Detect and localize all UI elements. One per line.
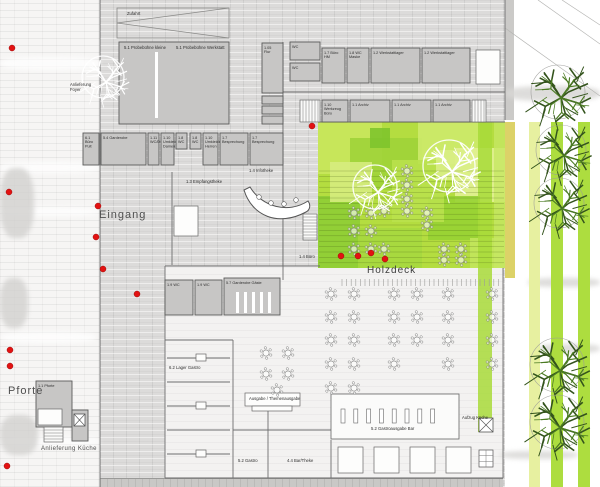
chair-icon — [369, 243, 371, 245]
table-icon — [328, 361, 334, 367]
table-icon — [328, 337, 334, 343]
chair-icon — [448, 250, 450, 252]
chair-icon — [420, 313, 422, 315]
tiny-label: Ausgabe / Themenausgabe — [249, 396, 301, 401]
chair-icon — [388, 250, 390, 252]
chair-icon — [358, 295, 360, 297]
chair-icon — [411, 337, 413, 339]
chair-icon — [275, 384, 277, 386]
chair-icon — [374, 245, 376, 247]
bench-stool — [294, 198, 299, 203]
landscape-stripe — [478, 122, 492, 432]
bench-stool — [269, 201, 274, 206]
chair-icon — [353, 217, 355, 219]
chair-icon — [411, 291, 413, 293]
chair-icon — [486, 361, 488, 363]
bar-slot — [392, 409, 396, 423]
chair-icon — [353, 344, 355, 346]
landscape-stripe — [505, 122, 515, 278]
chair-icon — [379, 251, 381, 253]
chair-icon — [335, 318, 337, 320]
chair-icon — [411, 172, 413, 174]
tiny-label: 6.2 Lager Gastro — [169, 365, 201, 370]
chair-icon — [420, 290, 422, 292]
chair-icon — [442, 243, 444, 245]
table-icon — [404, 208, 410, 214]
chair-icon — [430, 209, 432, 211]
table-icon — [445, 361, 451, 367]
chair-icon — [451, 313, 453, 315]
chair-icon — [291, 370, 293, 372]
chair-icon — [446, 358, 448, 360]
chair-icon — [357, 360, 359, 362]
fixture-box — [476, 50, 500, 84]
chair-icon — [261, 355, 263, 357]
chair-icon — [426, 229, 428, 231]
chair-icon — [460, 264, 462, 266]
table-icon — [489, 314, 495, 320]
chair-icon — [410, 195, 412, 197]
chair-icon — [334, 360, 336, 362]
table-icon — [424, 210, 430, 216]
chair-icon — [357, 245, 359, 247]
chair-icon — [425, 207, 427, 209]
bench-stool — [257, 195, 262, 200]
stairs — [303, 214, 317, 240]
chair-icon — [335, 389, 337, 391]
table-icon — [391, 361, 397, 367]
label-holzdeck: Holzdeck — [367, 265, 416, 276]
table-icon — [424, 222, 430, 228]
chair-icon — [334, 336, 336, 338]
table-icon — [445, 337, 451, 343]
chair-icon — [291, 349, 293, 351]
bar-slot — [341, 409, 345, 423]
chair-icon — [447, 256, 449, 258]
chair-icon — [447, 344, 449, 346]
room — [119, 42, 229, 124]
chair-icon — [353, 298, 355, 300]
garderobe-slot — [252, 292, 255, 313]
holzdeck-patch — [370, 128, 390, 148]
chair-icon — [348, 291, 350, 293]
site-plan: 1.05FlurWCWC1.7 BüroHM1.8 WCMaske1.2 Wer… — [0, 0, 600, 487]
fixture-box — [446, 447, 471, 473]
chair-icon — [375, 250, 377, 252]
chair-icon — [495, 290, 497, 292]
chair-icon — [401, 182, 403, 184]
chair-icon — [353, 235, 355, 237]
chair-icon — [443, 366, 445, 368]
chair-icon — [287, 378, 289, 380]
tiny-label: 5.2 Gastro — [238, 458, 258, 463]
chair-icon — [329, 334, 331, 336]
chair-icon — [329, 382, 331, 384]
table-icon — [328, 385, 334, 391]
chair-icon — [383, 253, 385, 255]
chair-icon — [348, 337, 350, 339]
fixture-box — [338, 447, 363, 473]
chair-icon — [329, 288, 331, 290]
table-icon — [404, 196, 410, 202]
chair-icon — [452, 341, 454, 343]
table-icon — [285, 371, 291, 377]
chair-icon — [378, 246, 380, 248]
chair-icon — [487, 342, 489, 344]
chair-icon — [465, 250, 467, 252]
room-label: 1.8 WCMaske — [349, 51, 362, 59]
chair-icon — [495, 360, 497, 362]
chair-icon — [357, 313, 359, 315]
chair-icon — [411, 200, 413, 202]
chair-icon — [405, 179, 407, 181]
chair-icon — [430, 221, 432, 223]
chair-icon — [456, 262, 458, 264]
room-label: 1.2 Werkstattlager — [424, 51, 455, 55]
tiny-label: Foyer — [70, 87, 81, 92]
chair-icon — [271, 387, 273, 389]
room-label: 1.2 Werkstattlager — [373, 51, 404, 55]
table-icon — [445, 291, 451, 297]
chair-icon — [431, 214, 433, 216]
chair-icon — [416, 344, 418, 346]
chair-icon — [326, 390, 328, 392]
chair-icon — [349, 233, 351, 235]
chair-icon — [325, 314, 327, 316]
chair-icon — [397, 360, 399, 362]
chair-icon — [410, 207, 412, 209]
chair-icon — [393, 368, 395, 370]
chair-icon — [353, 368, 355, 370]
chair-icon — [325, 385, 327, 387]
chair-icon — [269, 370, 271, 372]
chair-icon — [348, 314, 350, 316]
chair-icon — [431, 226, 433, 228]
chair-icon — [365, 210, 367, 212]
chair-icon — [405, 205, 407, 207]
label-eingang: Eingang — [99, 209, 146, 221]
fixture-box — [174, 206, 198, 236]
chair-icon — [456, 251, 458, 253]
chair-icon — [393, 321, 395, 323]
chair-icon — [334, 313, 336, 315]
room-label: 1.1 Archiv — [394, 103, 411, 107]
garderobe-slot — [260, 292, 263, 313]
zufahrt-diagonal — [117, 23, 229, 38]
table-icon — [458, 246, 464, 252]
chair-icon — [292, 375, 294, 377]
chair-icon — [401, 196, 403, 198]
chair-icon — [402, 213, 404, 215]
chair-icon — [335, 365, 337, 367]
bar-slot — [354, 409, 358, 423]
chair-icon — [358, 232, 360, 234]
table-icon — [351, 291, 357, 297]
red-dot-marker — [7, 363, 13, 369]
chair-icon — [421, 295, 423, 297]
chair-icon — [452, 318, 454, 320]
chair-icon — [365, 246, 367, 248]
chair-icon — [393, 298, 395, 300]
chair-icon — [451, 360, 453, 362]
red-dot-marker — [4, 463, 10, 469]
chair-icon — [358, 365, 360, 367]
chair-icon — [487, 366, 489, 368]
chair-icon — [490, 358, 492, 360]
chair-icon — [415, 288, 417, 290]
chair-icon — [358, 389, 360, 391]
chair-icon — [411, 186, 413, 188]
chair-icon — [439, 251, 441, 253]
chair-icon — [455, 246, 457, 248]
chair-icon — [486, 314, 488, 316]
chair-icon — [352, 311, 354, 313]
chair-icon — [370, 217, 372, 219]
red-dot-marker — [93, 234, 99, 240]
table-icon — [445, 314, 451, 320]
chair-icon — [398, 365, 400, 367]
table-icon — [458, 257, 464, 263]
chair-icon — [349, 251, 351, 253]
chair-icon — [459, 254, 461, 256]
red-dot-marker — [7, 347, 13, 353]
chair-icon — [442, 291, 444, 293]
chair-icon — [398, 295, 400, 297]
chair-icon — [402, 201, 404, 203]
chair-icon — [334, 384, 336, 386]
chair-icon — [411, 314, 413, 316]
chair-icon — [487, 319, 489, 321]
fixture-box — [196, 402, 206, 409]
chair-icon — [374, 227, 376, 229]
chair-icon — [329, 311, 331, 313]
stairs — [44, 427, 63, 442]
chair-icon — [405, 165, 407, 167]
chair-icon — [283, 376, 285, 378]
chair-icon — [442, 337, 444, 339]
chair-icon — [265, 378, 267, 380]
table-icon — [391, 291, 397, 297]
chair-icon — [389, 296, 391, 298]
chair-icon — [349, 366, 351, 368]
chair-icon — [447, 368, 449, 370]
chair-icon — [272, 392, 274, 394]
chair-icon — [397, 313, 399, 315]
table-icon — [391, 337, 397, 343]
chair-icon — [388, 291, 390, 293]
chair-icon — [352, 225, 354, 227]
chair-icon — [281, 391, 283, 393]
chair-icon — [366, 251, 368, 253]
chair-icon — [389, 319, 391, 321]
chair-icon — [330, 298, 332, 300]
table-icon — [489, 337, 495, 343]
chair-icon — [392, 358, 394, 360]
chair-icon — [329, 358, 331, 360]
chair-icon — [388, 314, 390, 316]
chair-icon — [455, 257, 457, 259]
chair-icon — [325, 291, 327, 293]
garderobe-slot — [244, 292, 247, 313]
chair-icon — [358, 250, 360, 252]
tiny-label: 1.3 Empfangstheke — [186, 179, 223, 184]
chair-icon — [358, 214, 360, 216]
chair-icon — [442, 314, 444, 316]
chair-icon — [410, 181, 412, 183]
room-label: 1.1 Archiv — [435, 103, 452, 107]
tiny-label: 5.2 Gastroausgabe Bar — [371, 426, 415, 431]
chair-icon — [357, 336, 359, 338]
chair-icon — [366, 233, 368, 235]
chair-icon — [353, 392, 355, 394]
chair-icon — [421, 341, 423, 343]
chair-icon — [421, 318, 423, 320]
chair-icon — [358, 341, 360, 343]
table-icon — [351, 385, 357, 391]
chair-icon — [388, 337, 390, 339]
chair-icon — [335, 341, 337, 343]
tiny-label: 4.4 Bar/Theke — [287, 458, 314, 463]
table-icon — [351, 246, 357, 252]
chair-icon — [442, 361, 444, 363]
chair-icon — [452, 295, 454, 297]
chair-icon — [326, 319, 328, 321]
chair-icon — [447, 298, 449, 300]
chair-icon — [352, 358, 354, 360]
chair-icon — [438, 246, 440, 248]
chair-icon — [366, 215, 368, 217]
chair-icon — [446, 334, 448, 336]
table-icon — [328, 291, 334, 297]
chair-icon — [422, 227, 424, 229]
chair-icon — [369, 225, 371, 227]
room-label: WC — [292, 66, 299, 70]
chair-icon — [349, 342, 351, 344]
chair-icon — [348, 246, 350, 248]
chair-icon — [443, 319, 445, 321]
table-icon — [489, 361, 495, 367]
chair-icon — [439, 262, 441, 264]
chair-icon — [422, 215, 424, 217]
chair-icon — [448, 261, 450, 263]
table-icon — [351, 337, 357, 343]
chair-icon — [451, 290, 453, 292]
chair-icon — [388, 361, 390, 363]
bar-slot — [431, 409, 435, 423]
chair-icon — [280, 386, 282, 388]
chair-icon — [260, 350, 262, 352]
chair-icon — [326, 342, 328, 344]
table-icon — [381, 246, 387, 252]
chair-icon — [348, 210, 350, 212]
chair-icon — [451, 336, 453, 338]
chair-icon — [335, 295, 337, 297]
landscape-stripe — [494, 122, 505, 268]
garderobe-slot — [268, 292, 271, 313]
table-icon — [489, 291, 495, 297]
table-icon — [351, 210, 357, 216]
chair-icon — [287, 357, 289, 359]
chair-icon — [398, 318, 400, 320]
chair-icon — [402, 187, 404, 189]
table-icon — [441, 257, 447, 263]
chair-icon — [496, 365, 498, 367]
tiny-label: 1.4 Büro — [299, 254, 316, 259]
chair-icon — [349, 319, 351, 321]
chair-icon — [412, 296, 414, 298]
chair-icon — [383, 215, 385, 217]
room — [262, 96, 283, 104]
bench-stool — [282, 202, 287, 207]
perspective-line — [538, 0, 600, 44]
chair-icon — [443, 296, 445, 298]
fixture-box — [410, 447, 435, 473]
red-dot-marker — [9, 45, 15, 51]
chair-icon — [490, 288, 492, 290]
table-icon — [391, 314, 397, 320]
chair-icon — [352, 382, 354, 384]
chair-icon — [325, 337, 327, 339]
chair-icon — [496, 295, 498, 297]
curved-bench — [244, 187, 310, 219]
room-label: 1.9 WC — [167, 283, 180, 287]
fixture-box — [196, 450, 206, 457]
chair-icon — [269, 349, 271, 351]
chair-icon — [352, 288, 354, 290]
tiny-label: 1.4 Infotheke — [249, 168, 274, 173]
red-dot-marker — [368, 250, 374, 256]
chair-icon — [382, 243, 384, 245]
chair-icon — [406, 189, 408, 191]
chair-icon — [425, 219, 427, 221]
chair-icon — [393, 344, 395, 346]
chair-icon — [496, 341, 498, 343]
chair-icon — [397, 336, 399, 338]
chair-icon — [389, 342, 391, 344]
chair-icon — [330, 321, 332, 323]
fixture-box — [374, 447, 399, 473]
chair-icon — [397, 290, 399, 292]
chair-icon — [392, 311, 394, 313]
table-icon — [368, 228, 374, 234]
chair-icon — [357, 290, 359, 292]
chair-icon — [365, 228, 367, 230]
chair-icon — [465, 261, 467, 263]
chair-icon — [406, 215, 408, 217]
room-label: 5.4 Garderobe — [103, 136, 128, 140]
bar-slot — [405, 409, 409, 423]
chair-icon — [379, 213, 381, 215]
chair-icon — [495, 336, 497, 338]
chair-icon — [389, 366, 391, 368]
chair-icon — [348, 385, 350, 387]
chair-icon — [416, 298, 418, 300]
chair-icon — [352, 334, 354, 336]
table-icon — [351, 361, 357, 367]
chair-icon — [349, 296, 351, 298]
room-label: 1.11WC/Du — [150, 136, 162, 144]
chair-icon — [491, 298, 493, 300]
table-icon — [441, 246, 447, 252]
chair-icon — [415, 334, 417, 336]
chair-icon — [357, 209, 359, 211]
chair-icon — [401, 208, 403, 210]
label-anlieferung-kueche: Anlieferung Küche — [41, 446, 97, 452]
chair-icon — [348, 361, 350, 363]
chair-icon — [357, 384, 359, 386]
table-icon — [404, 182, 410, 188]
red-dot-marker — [6, 189, 12, 195]
